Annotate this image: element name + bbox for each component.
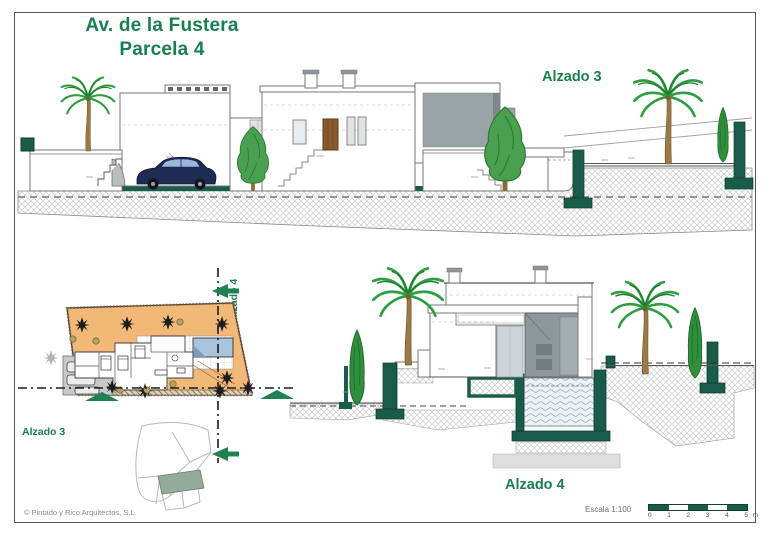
- bottom-elevation-drawing: [288, 262, 758, 474]
- scale-tick-1: 1: [667, 512, 671, 519]
- cypress-tree: [718, 107, 728, 162]
- scale-label: Escala 1:100: [585, 505, 631, 514]
- chimney: [447, 266, 548, 283]
- scale-ticks: 0 1 2 3 4 5 m: [648, 512, 748, 519]
- swimming-pool: [193, 338, 233, 357]
- entry-door: [323, 119, 338, 150]
- scale-bar: 0 1 2 3 4 5 m: [648, 504, 748, 519]
- page-title: Av. de la Fustera Parcela 4: [38, 14, 286, 63]
- foundation-base: [493, 454, 620, 468]
- scale-tick-0: 0: [648, 512, 652, 519]
- pool-planter-frame: [469, 378, 516, 396]
- scale-unit: m: [753, 512, 758, 519]
- cypress-tree: [688, 308, 701, 378]
- title-line-1: Av. de la Fustera: [38, 14, 286, 38]
- location-sketch: [112, 418, 247, 520]
- palm-tree: [634, 70, 701, 164]
- palm-tree: [62, 77, 115, 151]
- scale-segment: [688, 505, 708, 510]
- garden-deck: [584, 164, 734, 167]
- scale-tick-3: 3: [706, 512, 710, 519]
- highlighted-parcel: [158, 470, 204, 494]
- cypress-tree: [350, 330, 364, 405]
- title-line-2: Parcela 4: [38, 38, 286, 62]
- scale-tick-5: 5: [744, 512, 748, 519]
- gate-post: [21, 138, 34, 151]
- drawing-sheet: Av. de la Fustera Parcela 4 Alzado 3 Alz…: [0, 0, 770, 535]
- chimney: [303, 70, 357, 88]
- scale-segment: [669, 505, 689, 510]
- boundary-wall: [30, 150, 122, 191]
- scale-segment: [727, 505, 747, 510]
- house-facade: [260, 86, 419, 191]
- top-elevation-drawing: [16, 60, 754, 240]
- scale-tick-2: 2: [687, 512, 691, 519]
- faded-palm-symbol: [43, 350, 58, 365]
- copyright-note: © Pintado y Rico Arquitectos, S.L.: [24, 508, 137, 517]
- palm-tree: [612, 282, 678, 374]
- scale-segment: [708, 505, 728, 510]
- scale-bar-segments: [648, 504, 748, 511]
- scale-segment: [649, 505, 669, 510]
- scale-tick-4: 4: [725, 512, 729, 519]
- glazing-panel: [497, 326, 523, 377]
- elevation-4-label: Alzado 4: [505, 477, 565, 493]
